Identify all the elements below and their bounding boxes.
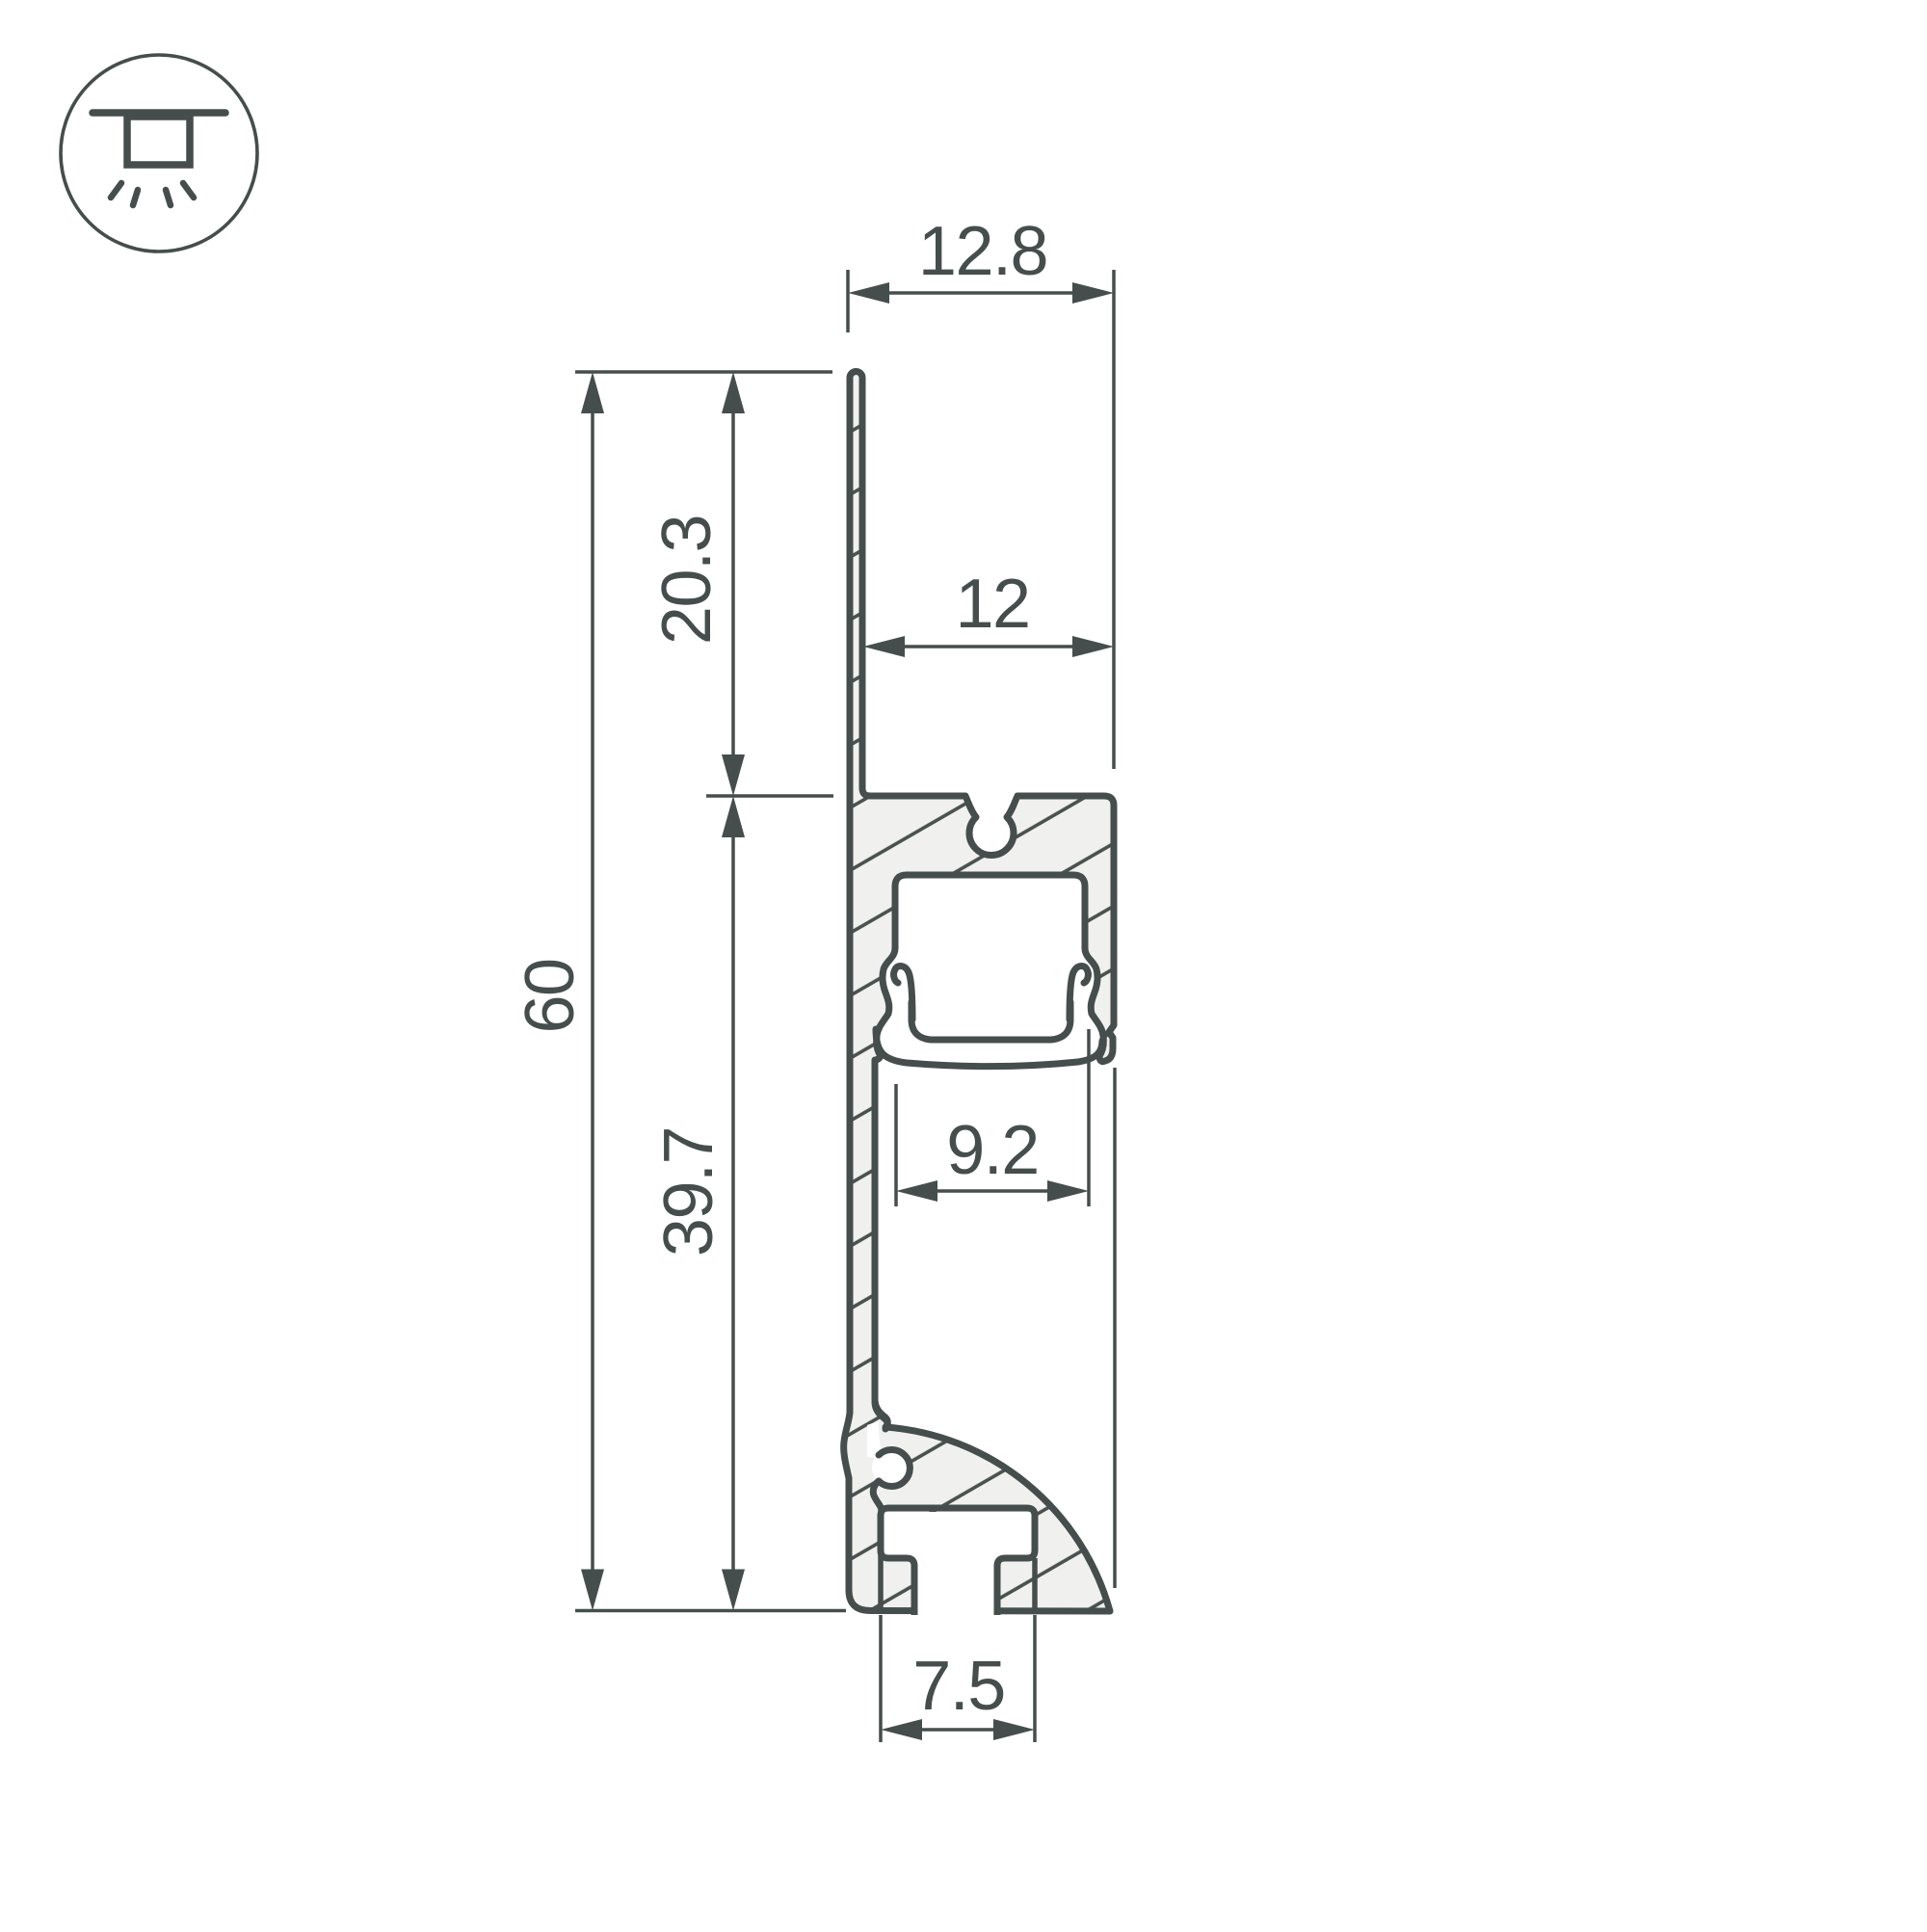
svg-text:9.2: 9.2 [946, 1112, 1039, 1189]
svg-text:12: 12 [955, 566, 1029, 643]
svg-text:12.8: 12.8 [918, 213, 1047, 290]
svg-text:39.7: 39.7 [650, 1127, 727, 1257]
svg-text:7.5: 7.5 [912, 1648, 1005, 1725]
svg-text:60: 60 [512, 959, 589, 1033]
svg-text:20.3: 20.3 [648, 516, 726, 645]
